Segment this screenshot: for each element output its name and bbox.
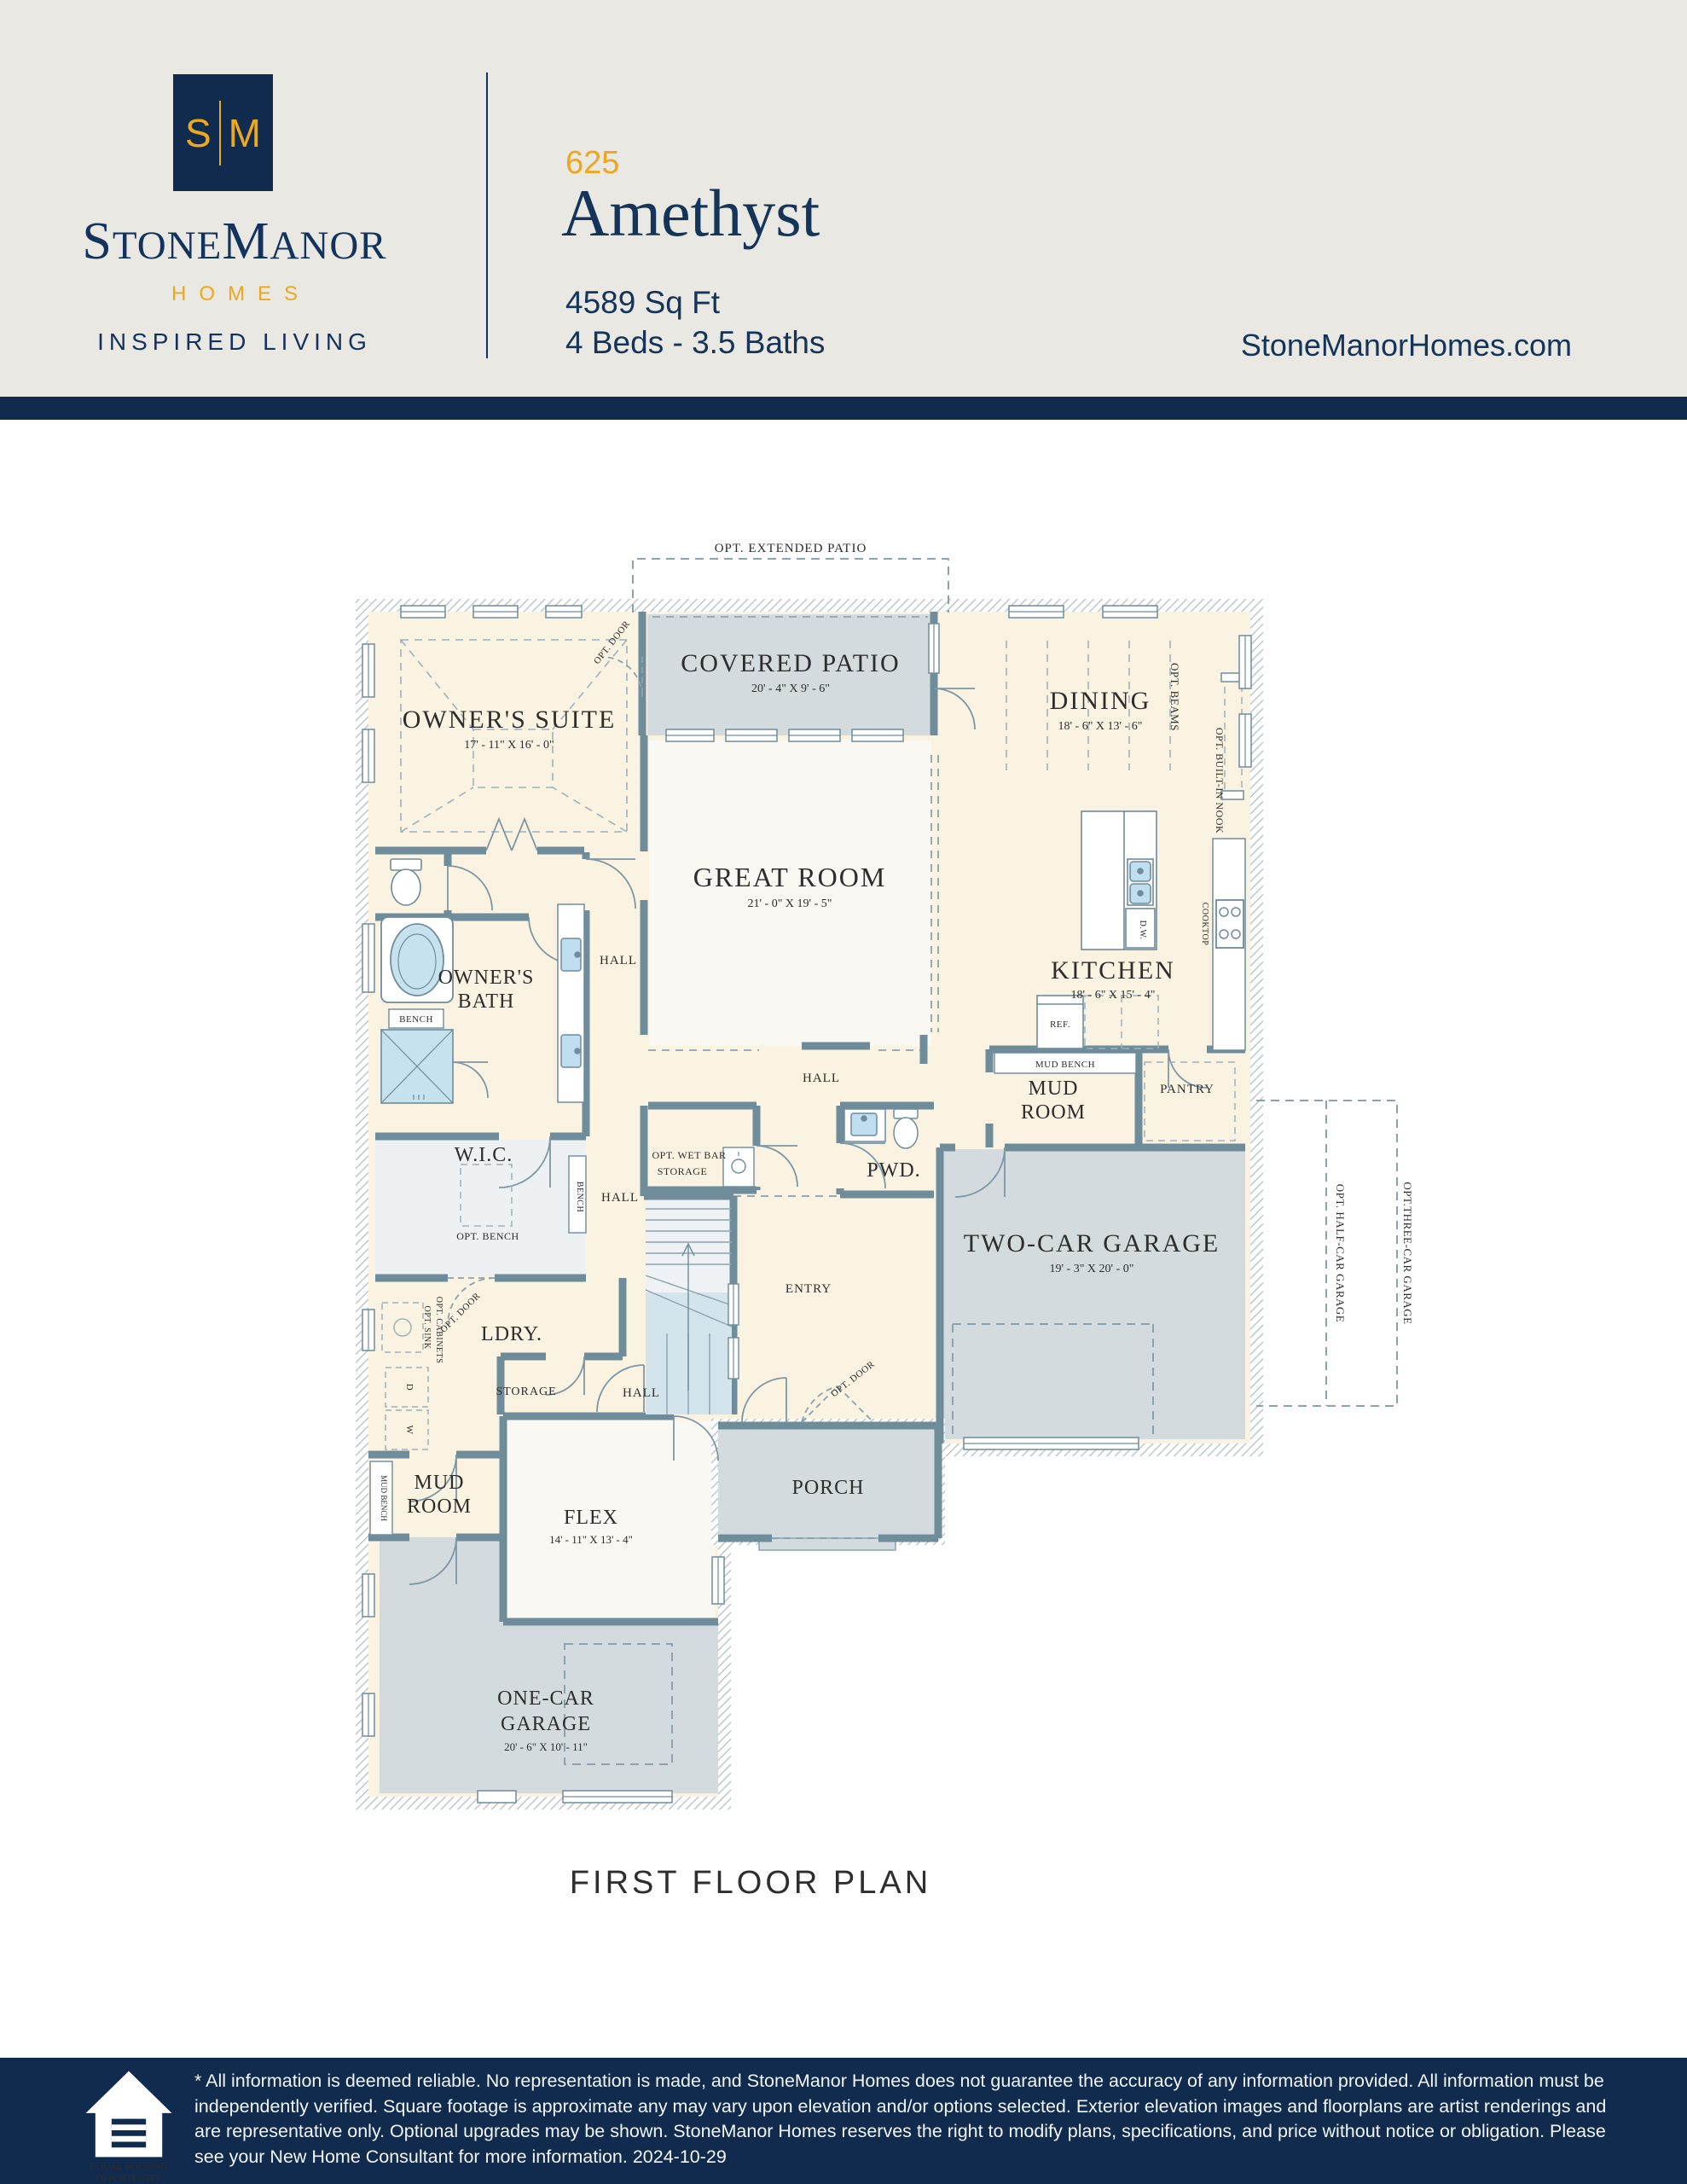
brand-part: anor — [270, 224, 386, 268]
opt-bench-label: OPT. BENCH — [456, 1230, 519, 1242]
two-car-garage-label: TWO-CAR GARAGE — [964, 1229, 1220, 1258]
porch: PORCH — [718, 1426, 938, 1550]
logo-divider-line — [219, 101, 221, 166]
great-room-dims: 21' - 0" X 19' - 5" — [748, 897, 832, 910]
porch-label: PORCH — [791, 1477, 864, 1499]
mud-bench-right: MUD BENCH — [994, 1053, 1136, 1073]
logo: S M — [173, 74, 273, 191]
mud-room-right-label1: MUD — [1028, 1077, 1078, 1100]
one-car-garage-dims: 20' - 6" X 10' - 11" — [504, 1740, 588, 1753]
mud-room-left-label1: MUD — [414, 1472, 464, 1494]
bath-vanity — [558, 904, 584, 1102]
opt-built-in-nook-label: OPT. BUILT-IN NOOK — [1214, 728, 1226, 834]
plan-beds-baths: 4 Beds - 3.5 Baths — [565, 325, 825, 361]
floor-plan: PORCH OPT. EXTENDED PATIO OPT. HALF-CAR … — [281, 473, 1416, 1821]
header-divider — [486, 73, 488, 358]
storage-label: STORAGE — [658, 1165, 708, 1177]
bath-bench: BENCH — [389, 1009, 443, 1028]
hall-label: HALL — [803, 1072, 840, 1085]
brand-part: tone — [113, 224, 222, 268]
hall-label: HALL — [623, 1386, 660, 1400]
one-car-garage-label2: GARAGE — [501, 1713, 591, 1735]
opt-garages — [1256, 1101, 1397, 1406]
wic-label: W.I.C. — [455, 1144, 513, 1166]
plan-sqft: 4589 Sq Ft — [565, 285, 720, 321]
header: S M StoneManor HOMES INSPIRED LIVING 625… — [0, 0, 1687, 420]
fridge-label: REF. — [1050, 1019, 1070, 1030]
kitchen-counter — [1213, 839, 1245, 1050]
header-rule — [0, 397, 1687, 420]
great-room-label: GREAT ROOM — [693, 862, 887, 892]
great-room-floor — [649, 741, 931, 1046]
entry-label: ENTRY — [786, 1282, 832, 1296]
owners-bath-label1: OWNER'S — [438, 967, 535, 989]
equal-housing-logo: EQUAL HOUSING OPPORTUNITY — [81, 2066, 177, 2184]
flyer-page: S M StoneManor HOMES INSPIRED LIVING 625… — [0, 0, 1687, 2184]
flex-dims: 14' - 11" X 13' - 4" — [549, 1533, 633, 1546]
dishwasher-label: D.W. — [1138, 921, 1147, 940]
two-car-garage-dims: 19' - 3" X 20' - 0" — [1050, 1263, 1134, 1275]
opt-wet-bar-label: OPT. WET BAR — [652, 1149, 726, 1161]
owners-bath-label2: BATH — [458, 990, 515, 1013]
opt-beams-label: OPT. BEAMS — [1168, 663, 1181, 731]
ldry-label: LDRY. — [481, 1323, 542, 1345]
mud-room-right-label2: ROOM — [1021, 1101, 1086, 1124]
bathtub — [381, 917, 453, 1002]
owners-suite-dims: 17' - 11" X 16' - 0" — [464, 739, 554, 752]
brand-homes: HOMES — [64, 282, 405, 306]
mud-room-left-label2: ROOM — [407, 1496, 472, 1518]
covered-patio-label: COVERED PATIO — [681, 649, 900, 677]
shower — [381, 1030, 453, 1103]
opt-cabinets-label: OPT. CABINETS — [434, 1297, 443, 1364]
mud-bench-label: MUD BENCH — [380, 1475, 388, 1521]
dining-label: DINING — [1050, 687, 1151, 715]
two-car-garage-floor — [940, 1149, 1245, 1439]
pantry-label: PANTRY — [1160, 1083, 1215, 1096]
mud-bench-left: MUD BENCH — [370, 1461, 392, 1535]
opt-extended-patio-label: OPT. EXTENDED PATIO — [715, 542, 867, 555]
brand-part: M — [222, 212, 270, 270]
storage-label: STORAGE — [496, 1385, 556, 1398]
cooktop-label: COOKTOP — [1200, 903, 1209, 946]
flex-label: FLEX — [564, 1507, 618, 1529]
opt-sink-label: OPT. SINK — [422, 1306, 432, 1350]
website-link[interactable]: StoneManorHomes.com — [1241, 328, 1572, 363]
hall-label: HALL — [601, 1191, 639, 1205]
dining-dims: 18' - 6" X 13' - 6" — [1058, 720, 1143, 733]
one-car-garage-label1: ONE-CAR — [497, 1687, 594, 1710]
logo-letter-s: S — [185, 113, 212, 153]
opt-three-car-garage-label: OPT.THREE-CAR GARAGE — [1401, 1182, 1414, 1324]
kitchen-label: KITCHEN — [1051, 956, 1175, 985]
hall-label: HALL — [600, 954, 637, 967]
plan-name: Amethyst — [561, 175, 820, 252]
opt-half-car-garage-label: OPT. HALF-CAR GARAGE — [1334, 1184, 1347, 1323]
eho-text-1: EQUAL HOUSING — [90, 2162, 168, 2172]
wet-bar — [723, 1147, 754, 1187]
covered-patio-dims: 20' - 4" X 9' - 6" — [751, 682, 830, 695]
logo-letter-m: M — [229, 113, 261, 153]
kitchen-dims: 18' - 6" X 15' - 4" — [1071, 989, 1156, 1002]
footer: EQUAL HOUSING OPPORTUNITY * All informat… — [0, 2058, 1687, 2184]
disclaimer-text: * All information is deemed reliable. No… — [194, 2069, 1619, 2169]
brand-tagline: INSPIRED LIVING — [64, 328, 405, 356]
bench-label: BENCH — [399, 1014, 433, 1025]
toilet-owner — [391, 859, 421, 905]
eho-text-2: OPPORTUNITY — [96, 2173, 161, 2183]
brand-part: S — [82, 212, 112, 270]
washer-label: W — [404, 1426, 415, 1435]
mud-bench-label: MUD BENCH — [1035, 1060, 1095, 1070]
pwd-label: PWD. — [867, 1159, 920, 1182]
plan-title: FIRST FLOOR PLAN — [495, 1865, 1006, 1902]
bench-label: BENCH — [575, 1182, 584, 1212]
owners-suite-label: OWNER'S SUITE — [403, 706, 617, 734]
dryer-label: D — [404, 1384, 415, 1391]
brand-name: StoneManor — [64, 212, 405, 272]
